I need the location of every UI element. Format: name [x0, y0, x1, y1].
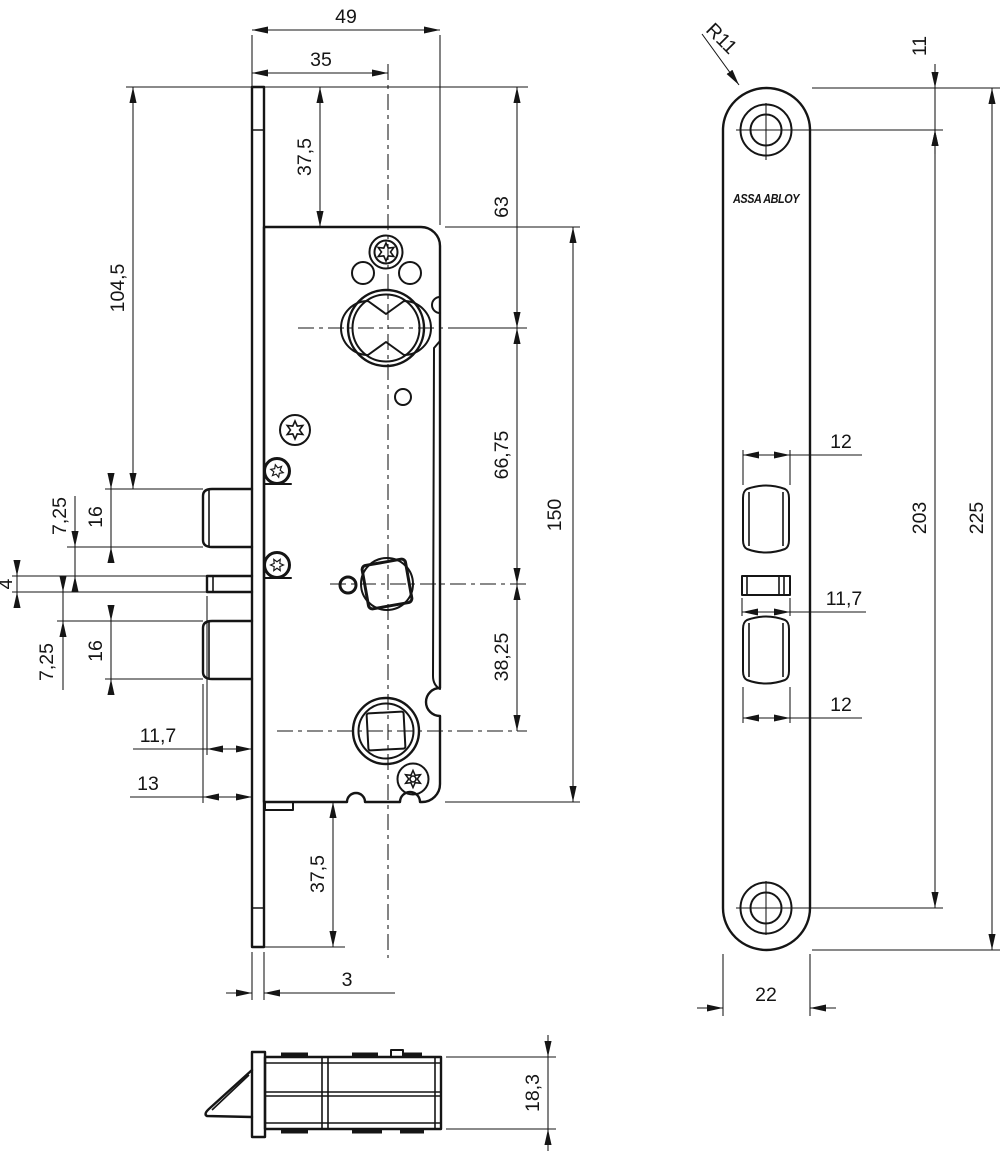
aux-opening [742, 576, 790, 595]
dim-corner-radius: R11 [701, 19, 741, 85]
dim-top-to-cylinder: 63 [491, 87, 517, 328]
dim-case-depth: 18,3 [522, 1035, 548, 1151]
dim-top-to-latch-label: 104,5 [107, 263, 129, 312]
dim-case-height-label: 150 [544, 499, 566, 532]
front-faceplate [252, 87, 264, 947]
dim-bottom-offset: 37,5 [307, 802, 333, 947]
dim-backset: 35 [252, 49, 388, 73]
dim-spindle-to-lower-label: 38,25 [491, 632, 513, 681]
dim-aux-protrusion: 11,7 [133, 725, 252, 749]
torx-screw-bottom [398, 764, 429, 795]
cylinder-hole [341, 290, 431, 366]
dim-corner-radius-label: R11 [701, 19, 741, 59]
dim-width-total: 49 [252, 6, 440, 30]
side-faceplate [252, 1052, 265, 1137]
dim-cylinder-to-spindle: 66,75 [491, 328, 517, 584]
front-view-dimensions: 49 35 37,5 63 104,5 66,75 150 38,25 [0, 6, 580, 1000]
faceplate-screw-upper [264, 459, 291, 485]
dim-aux-bar-height: 4 [0, 560, 17, 608]
faceplate-view: ASSA ABLOY [723, 88, 810, 950]
pin-hole-follower [340, 577, 356, 593]
dim-latch-height-upper-label: 16 [85, 506, 107, 528]
latch-bolt-upper [203, 489, 252, 547]
dim-latch-protrusion: 13 [130, 773, 252, 797]
technical-drawing-page: 49 35 37,5 63 104,5 66,75 150 38,25 [0, 0, 1000, 1157]
dim-lower-opening-width-label: 12 [830, 694, 852, 716]
dim-gap-upper-label: 7,25 [49, 497, 71, 535]
aux-bolt-bar [207, 576, 252, 592]
dim-bottom-offset-label: 37,5 [307, 855, 329, 893]
dim-gap-lower: 7,25 [36, 576, 63, 690]
latch-opening-lower [743, 617, 789, 684]
dim-top-to-hole-label: 11 [909, 36, 931, 56]
dim-top-offset: 37,5 [294, 87, 320, 227]
assa-abloy-logo: ASSA ABLOY [732, 191, 800, 206]
dim-plate-width-label: 22 [755, 984, 777, 1006]
latch-bolt-lower [203, 621, 252, 679]
pin-hole-below-cylinder [395, 389, 411, 405]
dim-cylinder-to-spindle-label: 66,75 [491, 430, 513, 479]
dim-aux-opening-width-label: 11,7 [826, 588, 863, 610]
pin-hole-right [399, 262, 421, 284]
dim-top-offset-label: 37,5 [294, 138, 316, 176]
dim-aux-opening-width: 11,7 [742, 588, 866, 612]
dim-latch-protrusion-label: 13 [137, 773, 159, 795]
dim-aux-protrusion-label: 11,7 [140, 725, 177, 747]
faceplate-screw-lower [264, 553, 291, 579]
dim-aux-bar-height-label: 4 [0, 578, 17, 589]
screw-hole-top [741, 103, 792, 160]
torx-screw-top [370, 236, 403, 269]
dim-upper-opening-width: 12 [743, 431, 862, 455]
latch-wedge [206, 1070, 252, 1117]
dim-latch-height-lower-label: 16 [85, 640, 107, 662]
torx-screw-mid [280, 415, 310, 445]
dim-top-to-cylinder-label: 63 [491, 196, 513, 218]
dim-top-to-hole: 11 [909, 36, 935, 154]
dim-hole-spacing-label: 203 [909, 502, 931, 535]
side-case [265, 1050, 441, 1134]
dim-latch-height-lower: 16 [85, 605, 111, 695]
dim-top-to-latch: 104,5 [107, 87, 133, 489]
latch-opening-upper [743, 486, 789, 553]
side-view [206, 1050, 441, 1137]
dim-plate-length-label: 225 [966, 502, 988, 535]
front-view [203, 64, 527, 958]
dim-backset-label: 35 [310, 49, 332, 71]
lock-technical-drawing: 49 35 37,5 63 104,5 66,75 150 38,25 [0, 0, 1000, 1157]
dim-faceplate-thickness: 3 [226, 969, 395, 993]
dim-case-depth-label: 18,3 [522, 1074, 544, 1112]
dim-faceplate-thickness-label: 3 [342, 969, 353, 991]
dim-upper-opening-width-label: 12 [830, 431, 852, 453]
pin-hole-left [352, 262, 374, 284]
dim-latch-height-upper: 16 [85, 473, 111, 563]
dim-width-total-label: 49 [335, 6, 357, 28]
dim-gap-upper: 7,25 [49, 496, 75, 592]
dim-spindle-to-lower: 38,25 [491, 584, 517, 731]
dim-plate-width: 22 [697, 984, 836, 1008]
dim-plate-length: 225 [966, 88, 992, 950]
faceplate-plate-outline [723, 88, 810, 950]
side-view-dimensions: 18,3 [446, 1035, 556, 1151]
dim-lower-opening-width: 12 [743, 694, 862, 718]
dim-hole-spacing: 203 [909, 130, 935, 908]
dim-gap-lower-label: 7,25 [36, 643, 58, 681]
dim-case-height: 150 [544, 227, 573, 802]
